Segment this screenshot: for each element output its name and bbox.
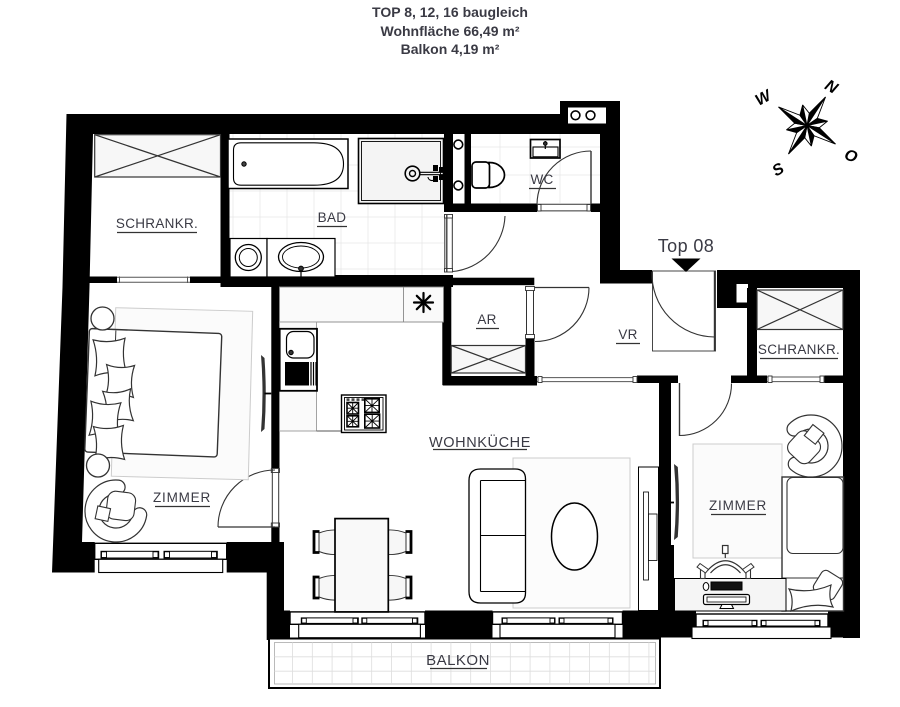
svg-text:ZIMMER: ZIMMER bbox=[709, 498, 767, 513]
svg-text:BALKON: BALKON bbox=[426, 652, 490, 669]
svg-text:Wohnfläche 66,49 m²: Wohnfläche 66,49 m² bbox=[380, 23, 519, 39]
svg-text:TOP 8, 12, 16 baugleich: TOP 8, 12, 16 baugleich bbox=[372, 4, 528, 20]
svg-text:VR: VR bbox=[618, 327, 637, 342]
svg-text:Top 08: Top 08 bbox=[658, 236, 714, 256]
svg-text:SCHRANKR.: SCHRANKR. bbox=[758, 342, 840, 357]
svg-text:AR: AR bbox=[477, 312, 496, 327]
svg-text:WOHNKÜCHE: WOHNKÜCHE bbox=[429, 433, 531, 451]
svg-text:SCHRANKR.: SCHRANKR. bbox=[116, 216, 198, 231]
svg-text:BAD: BAD bbox=[318, 210, 347, 225]
svg-text:ZIMMER: ZIMMER bbox=[153, 490, 211, 505]
svg-text:WC: WC bbox=[530, 172, 553, 187]
svg-text:Balkon 4,19 m²: Balkon 4,19 m² bbox=[401, 41, 500, 57]
